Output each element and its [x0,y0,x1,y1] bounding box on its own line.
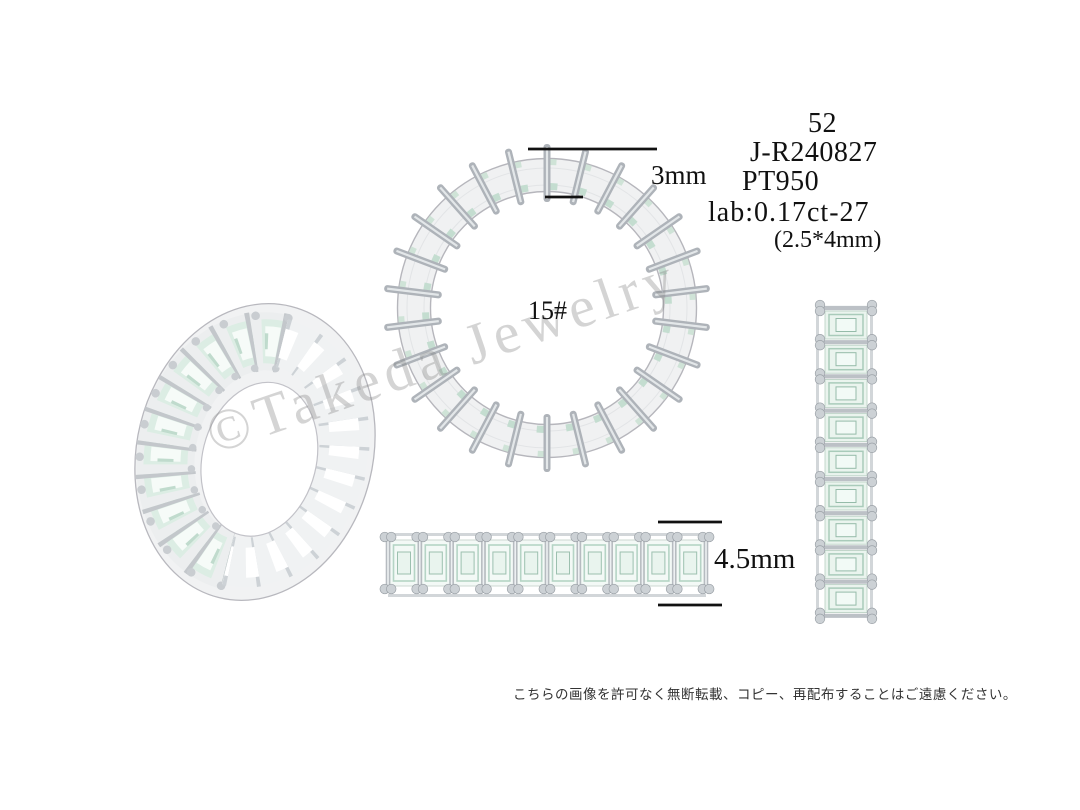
dimension-band-height-label: 4.5mm [714,545,795,574]
spec-model-number: J-R240827 [750,139,877,167]
ring-size-label: 15# [528,298,567,324]
spec-stone-size: (2.5*4mm) [774,228,881,252]
jewelry-spec-sheet: ©Takeda Jewelry 52 J-R240827 PT950 lab:0… [0,0,1080,810]
ring-perspective-view [104,278,406,626]
footer-disclaimer: こちらの画像を許可なく無断転載、コピー、再配布することはご遠慮ください。 [513,683,1017,703]
dimension-band-width-label: 3mm [651,162,707,189]
spec-stone: lab:0.17ct-27 [708,199,870,227]
spec-metal: PT950 [742,168,819,196]
ring-side-view [380,532,714,597]
ring-front-strip-view [815,300,877,623]
spec-size: 52 [808,110,837,138]
